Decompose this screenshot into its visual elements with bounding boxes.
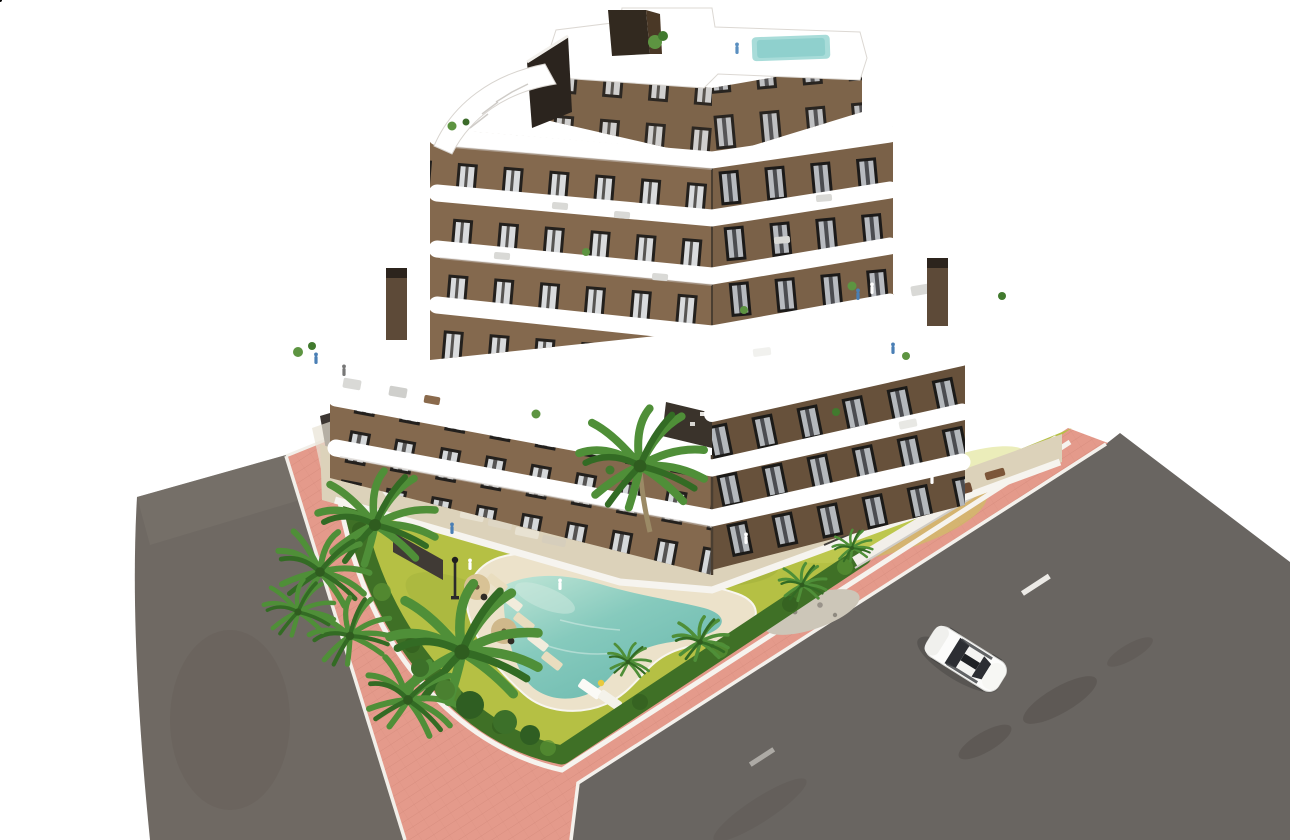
render-canvas: asphalt road left asphalt road right pin… (0, 0, 1290, 840)
chimney (927, 262, 948, 326)
architectural-render: asphalt road left asphalt road right pin… (0, 0, 1290, 840)
roof-structure (608, 10, 650, 56)
shrub (456, 691, 484, 719)
rooftop-pool: rooftop plunge pool (752, 35, 831, 62)
chimney (386, 272, 407, 340)
